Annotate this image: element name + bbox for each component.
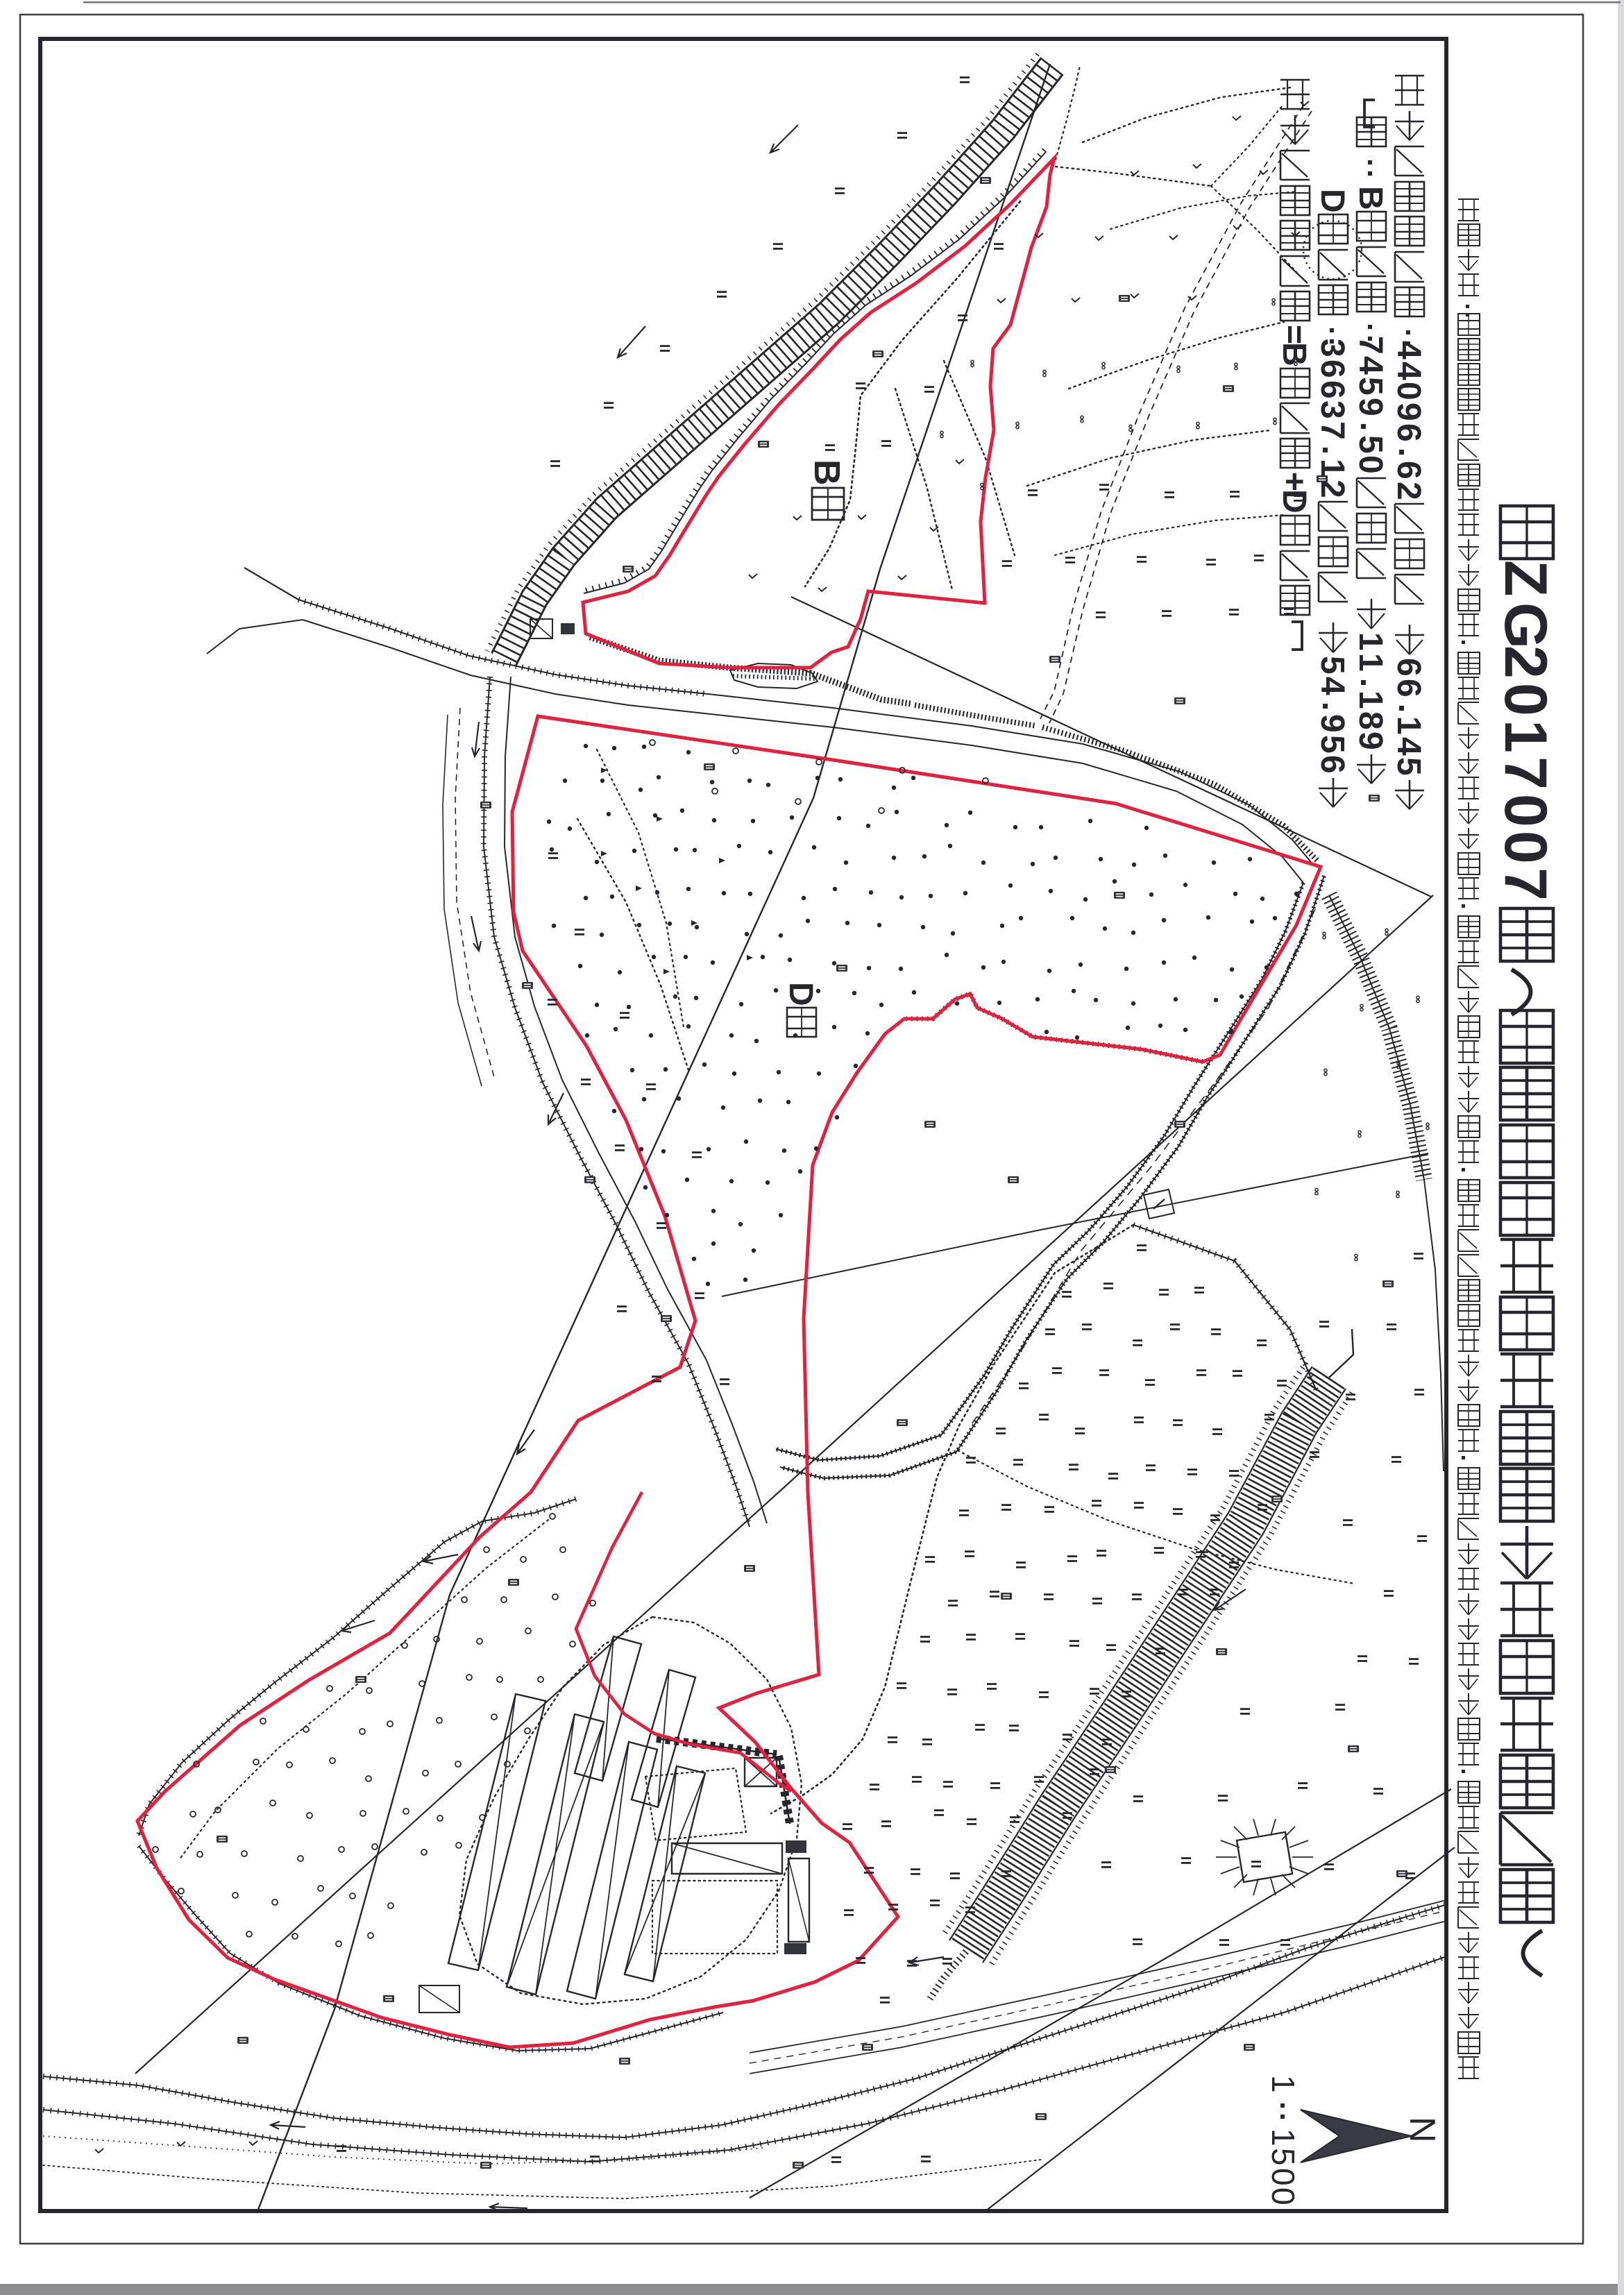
svg-text:8: 8 [1352,711,1389,730]
svg-text:4: 4 [1314,677,1351,695]
svg-text:=: = [1276,325,1312,344]
svg-text:0: 0 [1492,831,1559,864]
svg-text:2: 2 [1390,482,1427,500]
svg-text:7: 7 [1492,756,1559,790]
svg-text:B: B [1276,342,1312,366]
svg-text:1: 1 [1352,632,1389,651]
svg-text:9: 9 [1390,403,1427,421]
svg-text:6: 6 [1390,423,1427,442]
svg-text:0: 0 [1390,382,1427,400]
svg-text:4: 4 [1390,737,1427,756]
svg-text:5: 5 [1314,656,1351,675]
svg-text:6: 6 [1390,461,1427,480]
svg-text:6: 6 [1314,380,1351,399]
svg-text:0: 0 [1352,455,1389,474]
svg-text:0: 0 [1265,2168,1301,2186]
svg-text:5: 5 [1314,735,1351,754]
svg-text:1: 1 [1314,459,1351,477]
svg-text:6: 6 [1314,755,1351,774]
svg-text:1: 1 [1265,2075,1301,2093]
svg-text:4: 4 [1352,356,1389,375]
svg-text:7: 7 [1314,421,1351,440]
svg-text:Z: Z [1492,560,1559,597]
svg-text:3: 3 [1314,400,1351,419]
svg-text:9: 9 [1314,714,1351,733]
svg-text:0: 0 [1492,683,1559,716]
svg-text:2: 2 [1314,480,1351,498]
svg-text:N: N [1402,2117,1442,2143]
svg-text:4: 4 [1390,341,1427,359]
svg-text:5: 5 [1390,757,1427,776]
svg-text:B: B [1352,186,1389,210]
svg-text:D: D [782,982,819,1006]
svg-text:1: 1 [1265,2128,1301,2146]
svg-text:0: 0 [1492,794,1559,827]
svg-text:5: 5 [1265,2148,1301,2166]
svg-text:9: 9 [1352,398,1389,416]
svg-text:1: 1 [1390,716,1427,735]
svg-text:9: 9 [1352,731,1389,750]
svg-text:4: 4 [1390,362,1427,380]
svg-text:G: G [1492,602,1559,649]
svg-text:1: 1 [1352,653,1389,672]
svg-text:D: D [1276,489,1312,514]
svg-text:B: B [806,459,847,486]
svg-text:7: 7 [1492,867,1559,901]
svg-text:0: 0 [1265,2187,1301,2205]
svg-text:+: + [1276,472,1312,491]
svg-text:1: 1 [1352,691,1389,709]
svg-text:5: 5 [1352,377,1389,396]
svg-text:6: 6 [1390,679,1427,697]
svg-text:7: 7 [1352,336,1389,355]
svg-text:3: 3 [1314,339,1351,357]
svg-text:6: 6 [1390,658,1427,677]
svg-text:5: 5 [1352,435,1389,454]
svg-text:D: D [1314,189,1351,213]
svg-text:6: 6 [1314,359,1351,378]
svg-text:2: 2 [1492,645,1559,679]
svg-text:1: 1 [1492,720,1559,753]
